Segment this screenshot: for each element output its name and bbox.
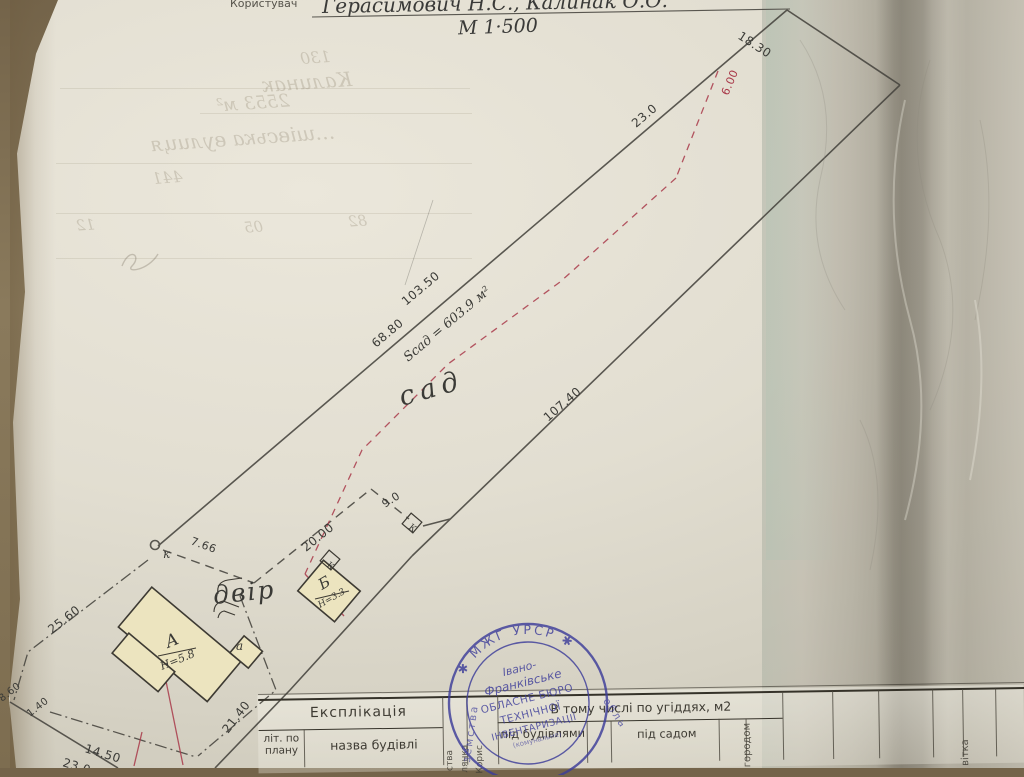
dim-6-00-red: 6.00	[719, 68, 741, 97]
red-line-lower-left	[134, 732, 142, 766]
table-column-line	[932, 689, 934, 757]
dim-23-0: 23.0	[629, 101, 660, 130]
column-building-name: назва будівлі	[305, 737, 443, 754]
crumple-crease	[917, 60, 953, 410]
table-column-line	[719, 719, 721, 761]
plot-right-boundary	[412, 85, 900, 556]
table-column-line	[832, 691, 834, 759]
column-lit-po-planu: літ. по плану	[260, 732, 303, 757]
table-column-line	[995, 688, 997, 756]
bleedthrough-signature-squiggle	[122, 254, 158, 270]
red-garden-boundary	[305, 178, 676, 574]
explication-table: Експлікація літ. по плану назва будівлі …	[258, 676, 1024, 768]
column-gorodom-rotated: городом	[742, 723, 754, 768]
names-underline	[312, 9, 790, 17]
yard-label: двір	[212, 575, 277, 610]
well-letter-boundary: К	[406, 523, 418, 535]
crumple-highlight	[894, 100, 922, 520]
crumple-crease	[860, 420, 878, 570]
dim-9-0: 9.0	[380, 489, 403, 510]
table-column-line	[962, 689, 964, 757]
crumple-highlight	[970, 300, 981, 480]
dim-20-00: 20.00	[299, 520, 336, 554]
column-note-rotated: вітка	[960, 739, 971, 766]
photo-of-survey-document: 130 Калинак 2553 м² …шівська вулиця 441 …	[0, 0, 1024, 768]
table-column-line	[878, 690, 880, 758]
point-k-label: к	[163, 547, 171, 561]
dim-107-40: 107.40	[541, 384, 584, 424]
plot-edge-18-30	[787, 10, 900, 85]
dim-68-80: 68.80	[369, 316, 406, 350]
annex-a-letter: а	[236, 639, 243, 653]
stamp-rim-left-text: земства	[461, 704, 481, 764]
dim-103-50: 103.50	[399, 269, 442, 309]
bti-round-stamp: ✱ МЖГ УРСР ✱ земства область Івано- Фран…	[433, 615, 623, 775]
crumple-crease	[975, 120, 989, 320]
dim-18-30: 18.30	[735, 29, 774, 61]
explication-underline	[259, 727, 443, 731]
dim-23-0-bottom: 23.0	[61, 755, 93, 768]
dim-1-40: 1.40	[25, 696, 51, 720]
dim-8-60: 8.60	[0, 681, 23, 705]
column-under-garden: під садом	[619, 727, 715, 742]
garden-label: сад	[395, 365, 467, 413]
dim-7-66: 7.66	[189, 535, 218, 556]
dim-25-60: 25.60	[45, 603, 83, 637]
plot-left-boundary	[158, 10, 787, 546]
table-title: Експлікація	[288, 703, 428, 721]
dim-21-40: 21.40	[219, 698, 253, 736]
